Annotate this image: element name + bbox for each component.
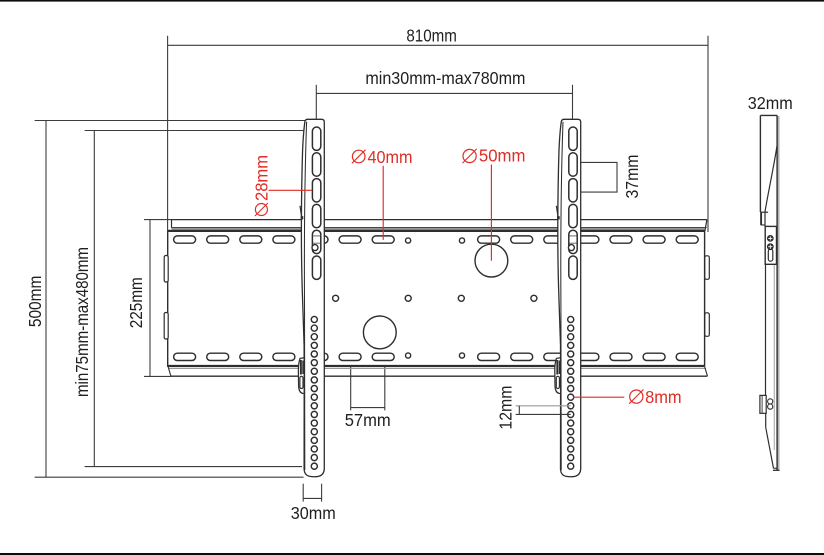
svg-text:50mm: 50mm	[479, 146, 526, 166]
svg-text:32mm: 32mm	[748, 93, 793, 113]
svg-text:min30mm-max780mm: min30mm-max780mm	[365, 68, 525, 88]
svg-text:225mm: 225mm	[126, 277, 146, 328]
svg-text:12mm: 12mm	[495, 386, 515, 430]
svg-text:810mm: 810mm	[406, 26, 457, 46]
svg-text:min75mm-max480mm: min75mm-max480mm	[72, 247, 92, 397]
svg-text:30mm: 30mm	[291, 503, 336, 523]
svg-text:28mm: 28mm	[252, 155, 272, 201]
svg-text:57mm: 57mm	[345, 410, 391, 430]
svg-text:500mm: 500mm	[25, 276, 45, 328]
svg-text:8mm: 8mm	[645, 387, 682, 407]
svg-text:37mm: 37mm	[622, 155, 642, 199]
svg-text:40mm: 40mm	[368, 147, 413, 167]
